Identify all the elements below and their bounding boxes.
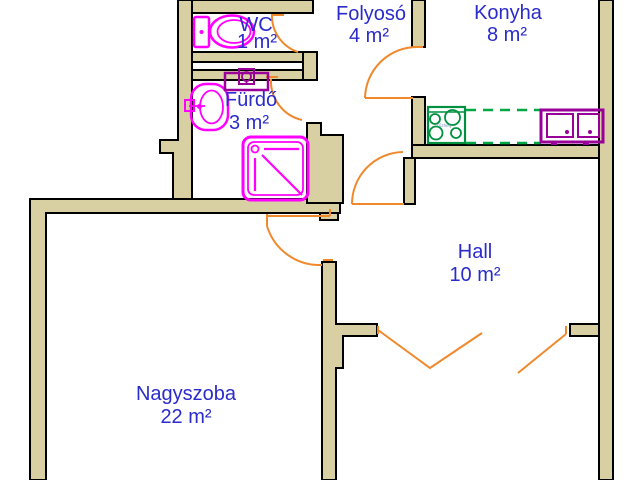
wall-folyoso-konyha-upper xyxy=(412,0,425,47)
floorplan-drawing: Tűzhely WC 1 m² Fürdő 3 m² Folyosó 4 m² … xyxy=(0,0,640,480)
wall-wc-bottom xyxy=(192,52,303,62)
wall-shower-block xyxy=(307,123,343,203)
wall-kitchen-band xyxy=(412,145,613,158)
room-area-furdo: 3 m² xyxy=(229,112,269,134)
wall-hall-nw-return xyxy=(404,158,415,204)
room-label-konyha: Konyha xyxy=(474,2,543,24)
hall-south-folding-door-left xyxy=(378,326,482,368)
stove-icon: Tűzhely xyxy=(428,107,465,143)
stove-label: Tűzhely xyxy=(436,123,453,128)
wall-folyoso-konyha-lower xyxy=(412,97,425,145)
room-label-folyoso: Folyosó xyxy=(336,3,406,25)
room-area-hall: 10 m² xyxy=(449,264,500,286)
wall-hall-nagyszoba-divider xyxy=(322,262,377,480)
wall-wc-top xyxy=(192,0,313,13)
floorplan-canvas: Tűzhely WC 1 m² Fürdő 3 m² Folyosó 4 m² … xyxy=(0,0,640,480)
hall-south-folding-door-right xyxy=(518,326,566,373)
wall-wc-furdo-stub xyxy=(303,52,317,80)
kitchen-sink-icon xyxy=(541,110,603,145)
kitchen-counter-outline xyxy=(466,110,541,143)
room-area-konyha: 8 m² xyxy=(487,24,527,46)
shower-icon xyxy=(243,137,308,200)
room-area-wc: 1 m² xyxy=(237,31,277,53)
konyha-door-arc xyxy=(365,47,423,98)
wall-south-band-and-left-outer xyxy=(30,199,340,480)
wall-right-outer xyxy=(599,0,613,480)
room-area-folyoso: 4 m² xyxy=(349,25,389,47)
room-label-hall: Hall xyxy=(458,241,492,263)
hall-folyoso-door-arc xyxy=(352,152,404,204)
room-label-nagyszoba: Nagyszoba xyxy=(136,383,237,405)
wall-hall-se-stub xyxy=(570,324,600,336)
room-label-furdo: Fürdő xyxy=(225,89,277,111)
walls xyxy=(30,0,613,480)
room-area-nagyszoba: 22 m² xyxy=(160,406,211,428)
